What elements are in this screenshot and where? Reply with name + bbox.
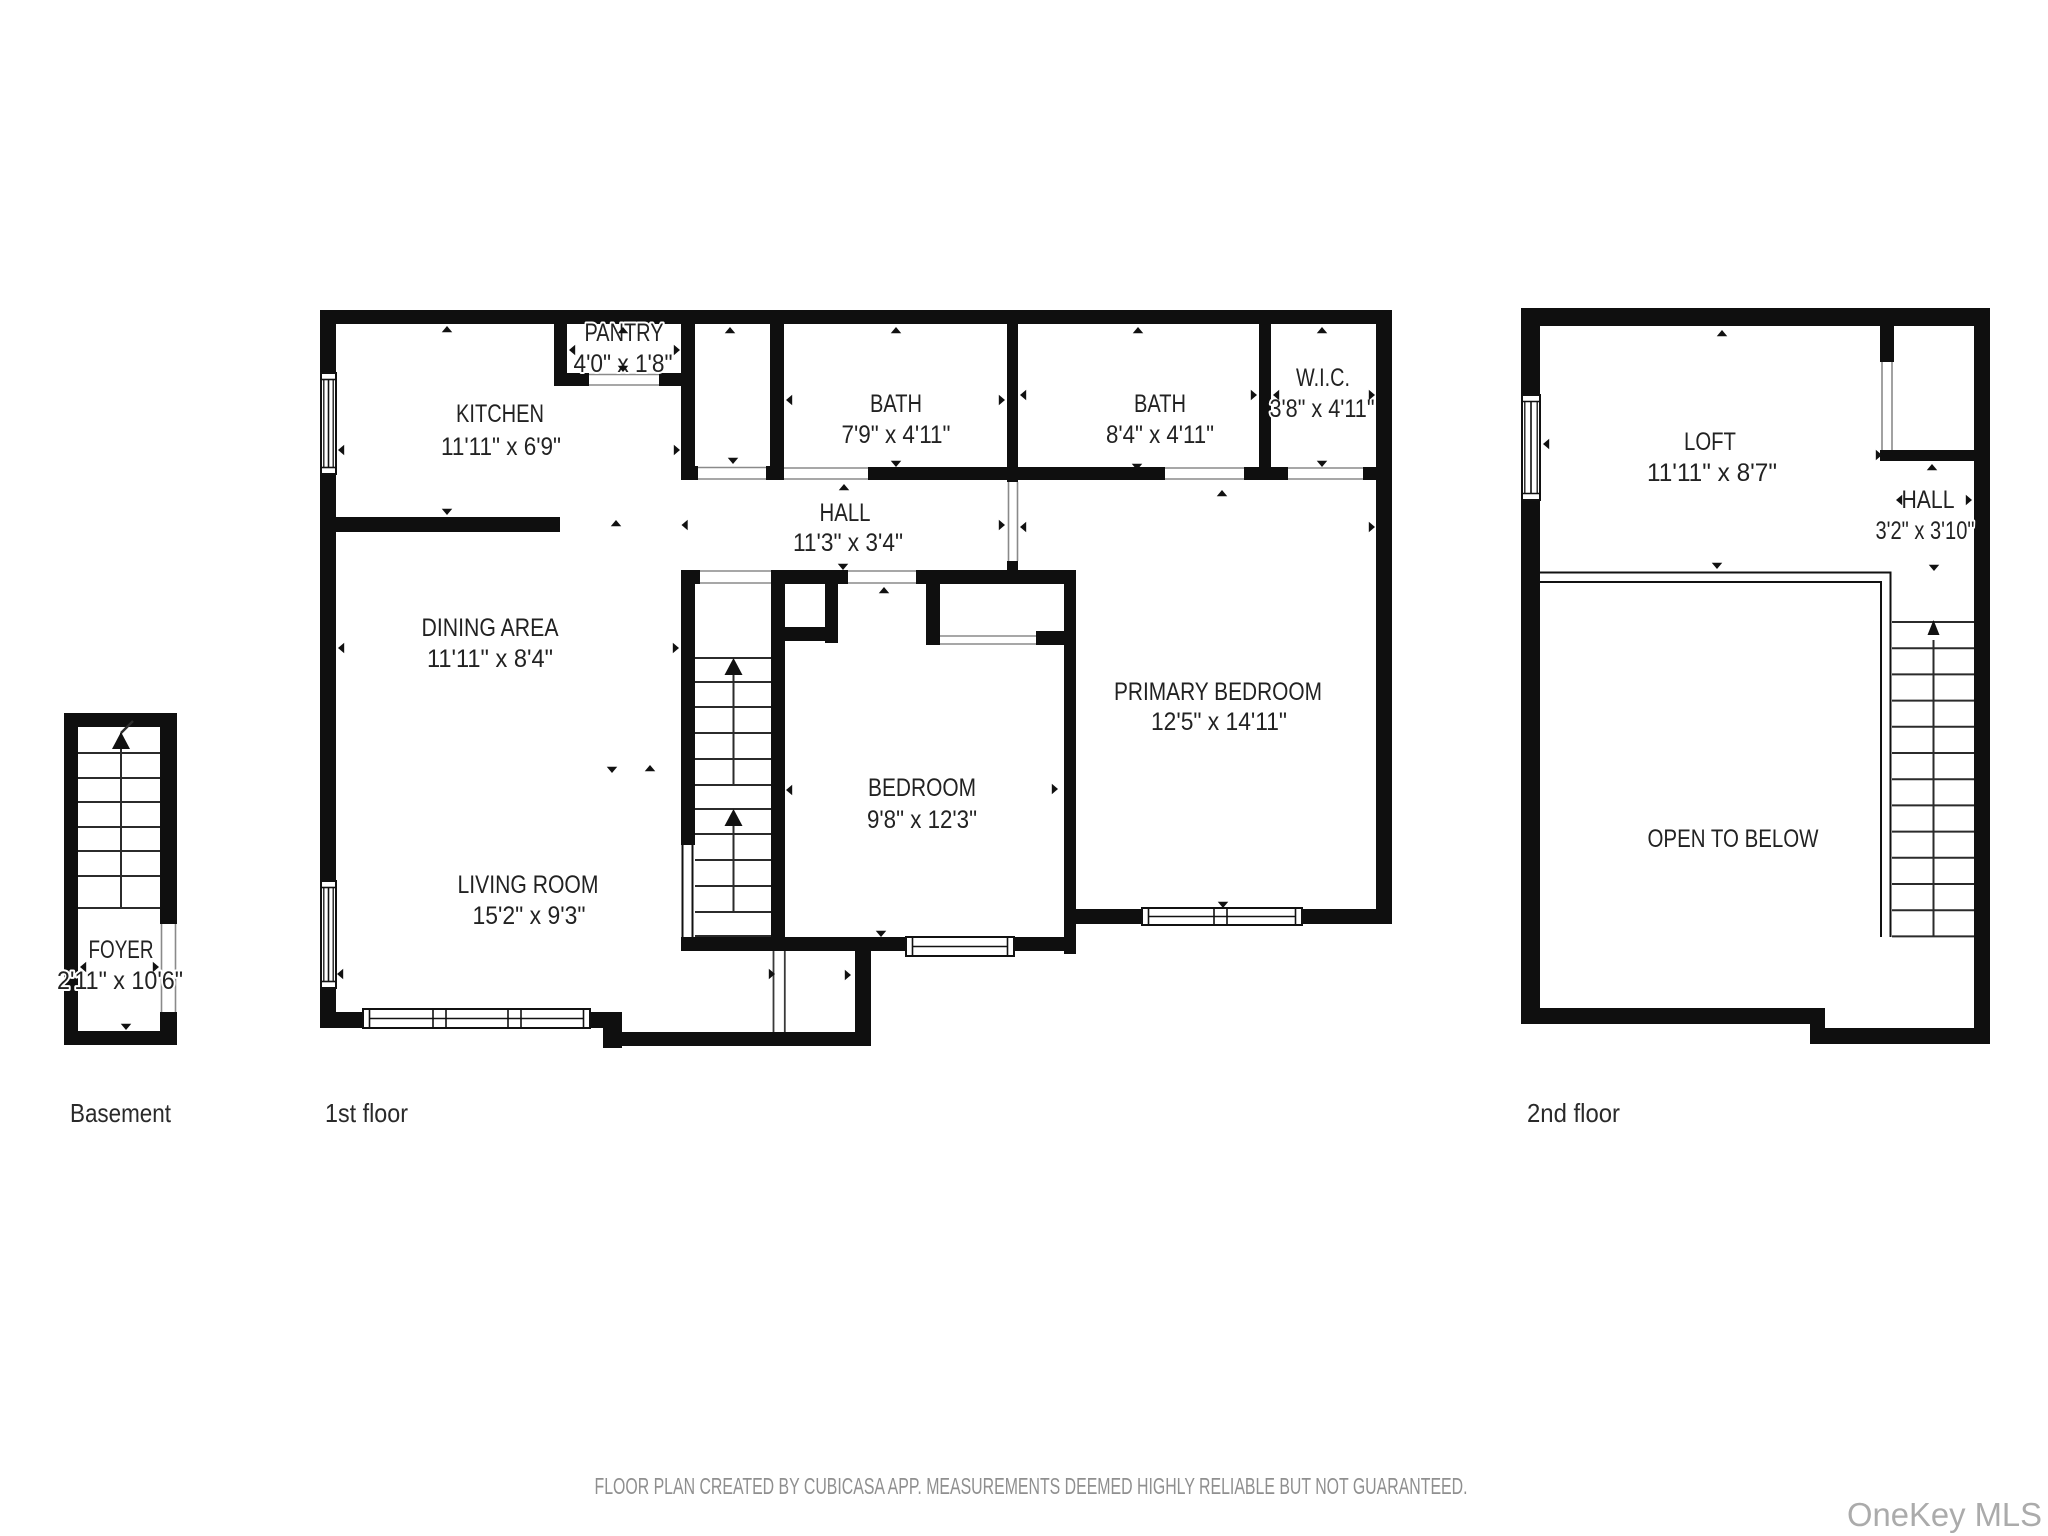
- svg-text:PRIMARY BEDROOM: PRIMARY BEDROOM: [1114, 678, 1322, 706]
- svg-text:W.I.C.: W.I.C.: [1296, 364, 1350, 392]
- svg-text:BATH: BATH: [870, 390, 922, 418]
- svg-text:4'0" x 1'8": 4'0" x 1'8": [574, 350, 673, 378]
- svg-text:LIVING ROOM: LIVING ROOM: [458, 871, 599, 899]
- svg-text:1st floor: 1st floor: [325, 1098, 408, 1128]
- svg-text:12'5" x 14'11": 12'5" x 14'11": [1151, 708, 1287, 736]
- svg-text:3'8" x 4'11": 3'8" x 4'11": [1270, 395, 1375, 423]
- svg-text:BATH: BATH: [1134, 390, 1186, 418]
- svg-text:7'9" x 4'11": 7'9" x 4'11": [842, 421, 951, 449]
- svg-text:11'11" x 8'4": 11'11" x 8'4": [427, 645, 553, 673]
- svg-text:2'11" x 10'6": 2'11" x 10'6": [57, 967, 183, 995]
- svg-text:HALL: HALL: [1902, 486, 1955, 514]
- svg-text:FOYER: FOYER: [89, 936, 154, 964]
- svg-text:11'3" x 3'4": 11'3" x 3'4": [793, 529, 903, 557]
- svg-text:FLOOR PLAN CREATED BY CUBICASA: FLOOR PLAN CREATED BY CUBICASA APP. MEAS…: [595, 1473, 1468, 1499]
- svg-text:11'11" x 8'7": 11'11" x 8'7": [1647, 459, 1777, 487]
- svg-text:BEDROOM: BEDROOM: [868, 774, 976, 802]
- svg-text:9'8" x 12'3": 9'8" x 12'3": [867, 806, 977, 834]
- svg-text:KITCHEN: KITCHEN: [456, 400, 544, 428]
- svg-text:Basement: Basement: [70, 1098, 172, 1128]
- svg-text:3'2" x 3'10": 3'2" x 3'10": [1876, 517, 1975, 545]
- svg-text:15'2" x 9'3": 15'2" x 9'3": [473, 902, 586, 930]
- svg-text:OPEN TO BELOW: OPEN TO BELOW: [1648, 825, 1819, 853]
- svg-text:DINING AREA: DINING AREA: [422, 614, 559, 642]
- svg-text:8'4" x 4'11": 8'4" x 4'11": [1106, 421, 1214, 449]
- svg-text:OneKey MLS: OneKey MLS: [1847, 1496, 2042, 1533]
- svg-text:LOFT: LOFT: [1684, 428, 1736, 456]
- svg-text:11'11" x 6'9": 11'11" x 6'9": [441, 433, 561, 461]
- svg-text:2nd floor: 2nd floor: [1527, 1098, 1620, 1128]
- svg-text:HALL: HALL: [820, 499, 871, 527]
